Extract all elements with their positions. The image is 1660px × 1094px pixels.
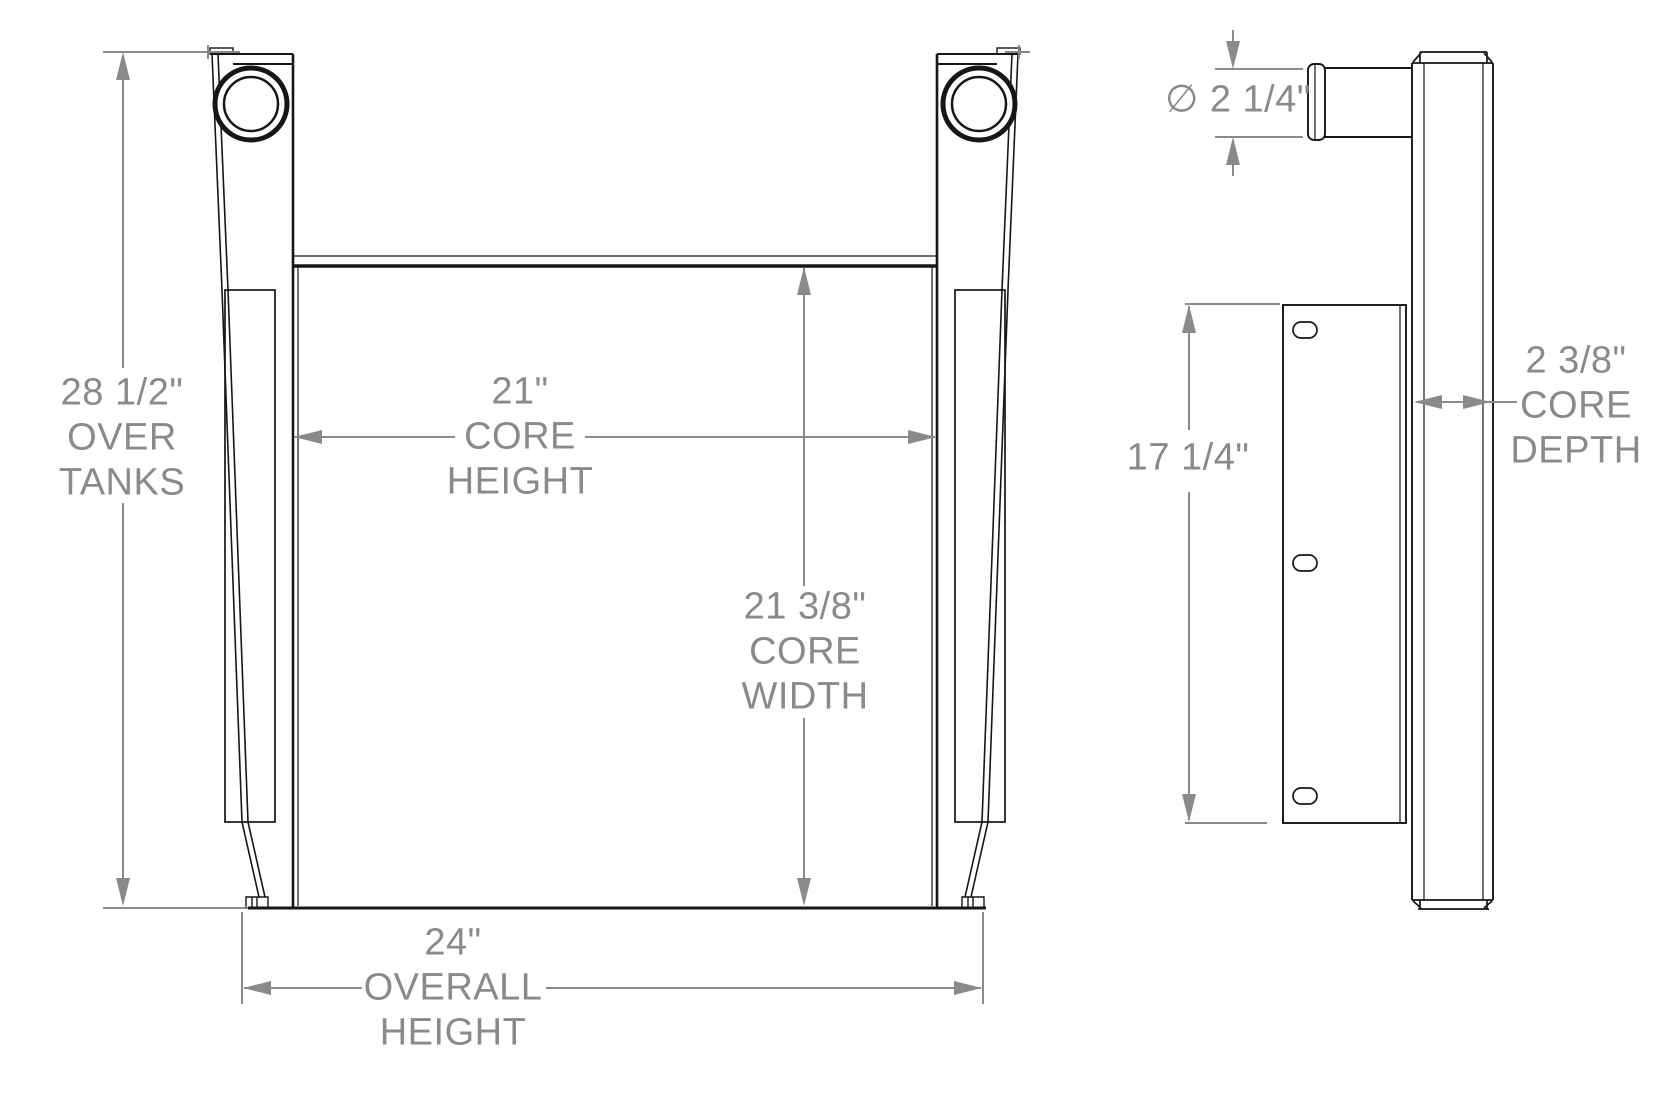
right-tank-foot xyxy=(962,897,984,908)
dimension-linework xyxy=(103,30,1517,1004)
left-tank-walls xyxy=(212,54,265,897)
dim-label-overall-height: 24" OVERALL HEIGHT xyxy=(364,921,543,1056)
side-tank-bottom-cap xyxy=(1412,900,1493,909)
dim-tube-diameter-arrow-down xyxy=(1226,41,1240,69)
dim-core-depth-arrow-right xyxy=(1463,395,1491,409)
left-tank-top-cap xyxy=(210,54,293,64)
mount-plate xyxy=(1283,305,1406,823)
mount-slot-top xyxy=(1293,322,1317,338)
right-tank-top-cap xyxy=(937,54,1020,64)
dim-core-width-arrow-up xyxy=(797,267,811,295)
left-inlet-port-ring xyxy=(215,68,287,140)
dim-label-over-tanks: 28 1/2" OVER TANKS xyxy=(59,371,185,506)
left-tank xyxy=(210,48,293,908)
dim-core-width-arrow-down xyxy=(797,878,811,906)
dim-label-core-height: 21" CORE HEIGHT xyxy=(447,370,594,505)
front-view xyxy=(210,48,1020,908)
dim-plate-height-arrow-down xyxy=(1182,794,1196,822)
cooler-core xyxy=(248,54,986,908)
dim-label-core-depth: 2 3/8" CORE DEPTH xyxy=(1510,339,1641,474)
dim-overall-height-arrow-left xyxy=(243,981,271,995)
right-tank xyxy=(937,48,1020,908)
dim-overall-height-arrow-right xyxy=(954,981,982,995)
technical-drawing-page: 28 1/2" OVER TANKS 21" CORE HEIGHT 21 3/… xyxy=(0,0,1660,1094)
drawing-linework xyxy=(0,0,1660,1094)
side-tank-inner-edges xyxy=(1424,63,1483,900)
side-view xyxy=(1283,52,1493,909)
outlet-tube-body xyxy=(1325,68,1412,137)
dim-core-depth-arrow-left xyxy=(1414,395,1442,409)
dim-label-tube-diameter: ∅ 2 1/4" xyxy=(1165,78,1311,123)
dim-over-tanks-arrow-up xyxy=(116,52,130,80)
dim-tube-diameter-arrow-up xyxy=(1226,137,1240,165)
dim-over-tanks-arrow-down xyxy=(116,878,130,906)
right-tank-walls xyxy=(965,54,1018,897)
dim-label-core-width: 21 3/8" CORE WIDTH xyxy=(741,585,868,720)
dim-overall-height-lines xyxy=(242,912,983,1004)
right-inlet-port-ring xyxy=(943,68,1015,140)
mount-slot-middle xyxy=(1293,555,1317,571)
side-tank-top-cap xyxy=(1412,52,1493,63)
side-tank-profile xyxy=(1412,52,1493,909)
mount-slot-bottom xyxy=(1293,788,1317,804)
outlet-tube xyxy=(1308,64,1412,140)
dim-plate-height-lines xyxy=(1185,304,1280,823)
dim-plate-height-arrow-up xyxy=(1182,305,1196,333)
mount-plate-outline xyxy=(1283,305,1406,823)
dim-label-plate-height: 17 1/4" xyxy=(1127,436,1250,481)
left-tank-foot xyxy=(246,897,268,908)
